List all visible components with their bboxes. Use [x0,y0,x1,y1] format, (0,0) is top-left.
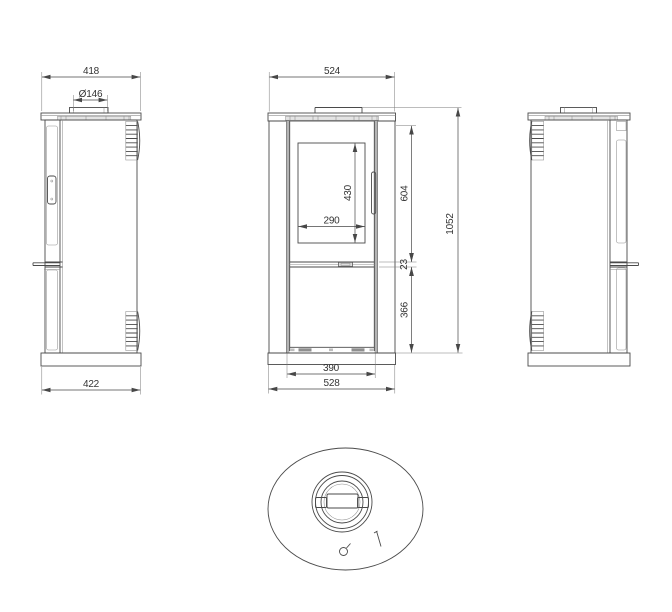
shelf-latch [339,262,353,266]
flue-collar-side [70,108,109,114]
dim-23-label: 23 [399,259,410,270]
technical-drawing-page: 418 Ø146 422 [0,0,672,612]
handle-screw [51,198,53,200]
body-outline-right [531,120,627,353]
lower-edge-panel-right [617,268,627,350]
dim-524-label: 524 [324,66,341,77]
top-plate-right [528,113,630,120]
lower-edge-panel [47,270,58,350]
stove-drawing-canvas: 418 Ø146 422 [0,0,672,612]
dim-604: 604 [379,126,417,263]
dim-390-label: 390 [323,363,340,374]
front-view: 524 290 430 604 23 366 [268,66,463,394]
flue-collar-top-view [312,472,372,532]
base-plinth-right [528,353,630,366]
air-vent-louvers-bottom [126,312,140,351]
left-pillar [269,121,287,353]
shelf-front [290,262,375,267]
right-pillar [378,121,396,353]
right-pillar-shadow [375,121,378,353]
lower-door-bottom [290,347,375,351]
latch-handle-side-right [610,263,639,270]
dim-422: 422 [42,367,141,395]
base-plinth [41,353,141,366]
air-vent-louvers-bottom-right [530,312,544,351]
top-view-outline [268,448,423,570]
right-side-view [528,108,639,367]
dim-422-label: 422 [83,379,100,390]
handle-screw [51,180,53,182]
dim-418-label: 418 [83,66,100,77]
air-vent-louvers-top [126,121,140,160]
dim-390: 390 [287,354,375,379]
dim-1052: 1052 [445,108,458,353]
dim-528-label: 528 [324,378,341,389]
dim-604-label: 604 [399,185,410,202]
dim-290-label: 290 [323,216,340,227]
dim-430: 430 [343,143,355,242]
dim-430-label: 430 [343,184,354,201]
dim-366-label: 366 [399,301,410,318]
dim-23: 23 [379,253,417,276]
dim-146-label: Ø146 [79,89,103,100]
top-step-right [617,122,627,131]
door-handle-top-view [374,531,381,547]
dim-1052-label: 1052 [445,213,456,235]
top-plate [41,113,141,120]
latch-hook-top-view [340,544,351,556]
left-side-view: 418 Ø146 422 [33,66,141,395]
dim-366: 366 [399,267,411,352]
door-edge-panel-right [617,140,627,243]
left-pillar-shadow [287,121,290,353]
damper-plate [327,494,358,508]
latch-handle-side [33,263,60,270]
air-vent-louvers-top-right [530,121,544,160]
dim-524: 524 [269,66,394,112]
top-plate-front [268,113,396,121]
top-view [268,448,423,570]
body-outline [45,120,137,353]
flue-collar-side-right [561,108,597,114]
